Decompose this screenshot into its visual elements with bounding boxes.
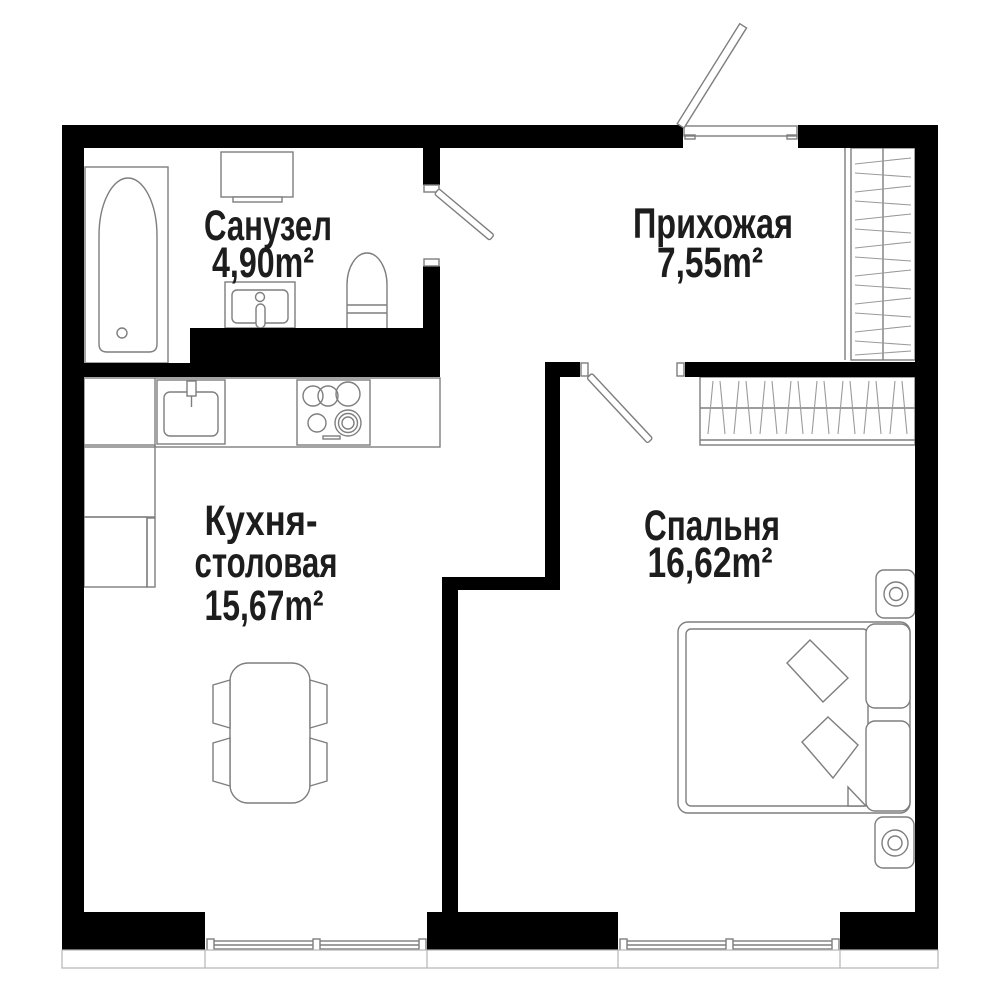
bathroom-label: Санузел 4,90m²	[204, 202, 332, 287]
chair	[213, 738, 230, 786]
kitchen-area: 15,67m²	[205, 582, 324, 630]
bedroom-label: Спальня 16,62m²	[644, 502, 780, 587]
facade-sill	[62, 950, 938, 968]
bathroom-area: 4,90m²	[212, 239, 314, 287]
kitchen-name-line1: Кухня-	[205, 497, 318, 545]
background	[0, 0, 1000, 1000]
double-bed	[678, 622, 910, 813]
washing-machine	[221, 152, 293, 202]
bedroom-window	[618, 912, 840, 951]
chair	[310, 738, 327, 786]
bathtub	[85, 167, 168, 363]
bedroom-area: 16,62m²	[648, 539, 773, 587]
kitchen-window	[205, 912, 427, 951]
kitchen-name-line2: столовая	[195, 539, 338, 587]
hallway-area: 7,55m²	[657, 239, 763, 287]
floor-plan: Санузел 4,90m² Прихожая 7,55m² Кухня- ст…	[0, 0, 1000, 1000]
floor-plan-svg: Санузел 4,90m² Прихожая 7,55m² Кухня- ст…	[0, 0, 1000, 1000]
bathroom-sink	[225, 282, 295, 328]
chair	[213, 680, 230, 728]
chair	[310, 680, 327, 728]
kitchen-label: Кухня- столовая 15,67m²	[195, 497, 338, 630]
dining-table	[230, 663, 310, 803]
